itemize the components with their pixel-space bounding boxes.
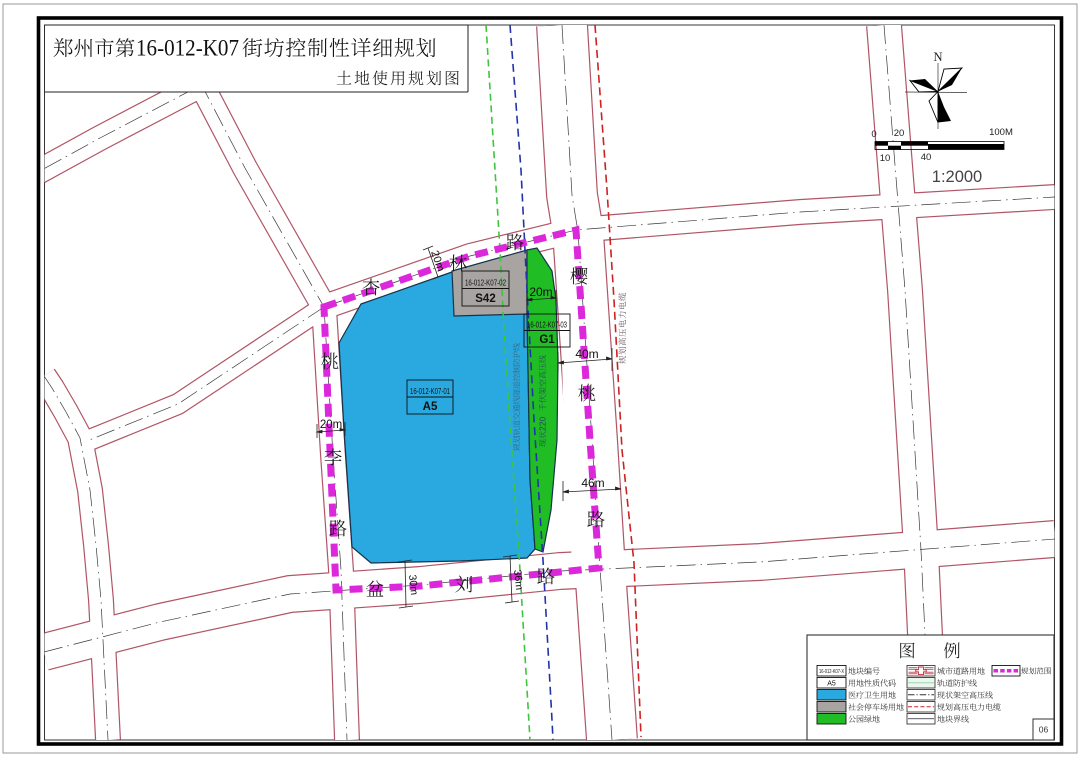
svg-text:100M: 100M: [989, 127, 1013, 138]
svg-text:16-012-K07-X: 16-012-K07-X: [819, 669, 845, 675]
svg-text:S42: S42: [475, 293, 495, 305]
svg-text:A5: A5: [423, 401, 438, 413]
svg-text:G1: G1: [539, 334, 555, 346]
svg-text:16-012-K07-03: 16-012-K07-03: [527, 320, 567, 330]
svg-text:46m: 46m: [581, 476, 604, 490]
svg-text:N: N: [933, 50, 942, 64]
svg-text:10: 10: [880, 153, 891, 164]
svg-text:20: 20: [894, 128, 905, 139]
svg-text:220: 220: [538, 417, 548, 431]
svg-text:16-012-K07-01: 16-012-K07-01: [410, 386, 450, 396]
svg-text:0: 0: [871, 129, 876, 140]
svg-text:1:2000: 1:2000: [932, 168, 982, 186]
svg-text:16-012-K07: 16-012-K07: [136, 36, 239, 61]
svg-text:40m: 40m: [575, 347, 598, 361]
svg-text:16-012-K07-02: 16-012-K07-02: [465, 278, 506, 288]
svg-text:40: 40: [921, 152, 932, 163]
svg-text:36m: 36m: [511, 569, 525, 591]
svg-text:06: 06: [1039, 725, 1049, 735]
svg-text:20m: 20m: [320, 419, 342, 431]
svg-text:30m: 30m: [406, 574, 420, 596]
svg-text:20m: 20m: [529, 285, 552, 299]
svg-text:A5: A5: [827, 681, 836, 688]
